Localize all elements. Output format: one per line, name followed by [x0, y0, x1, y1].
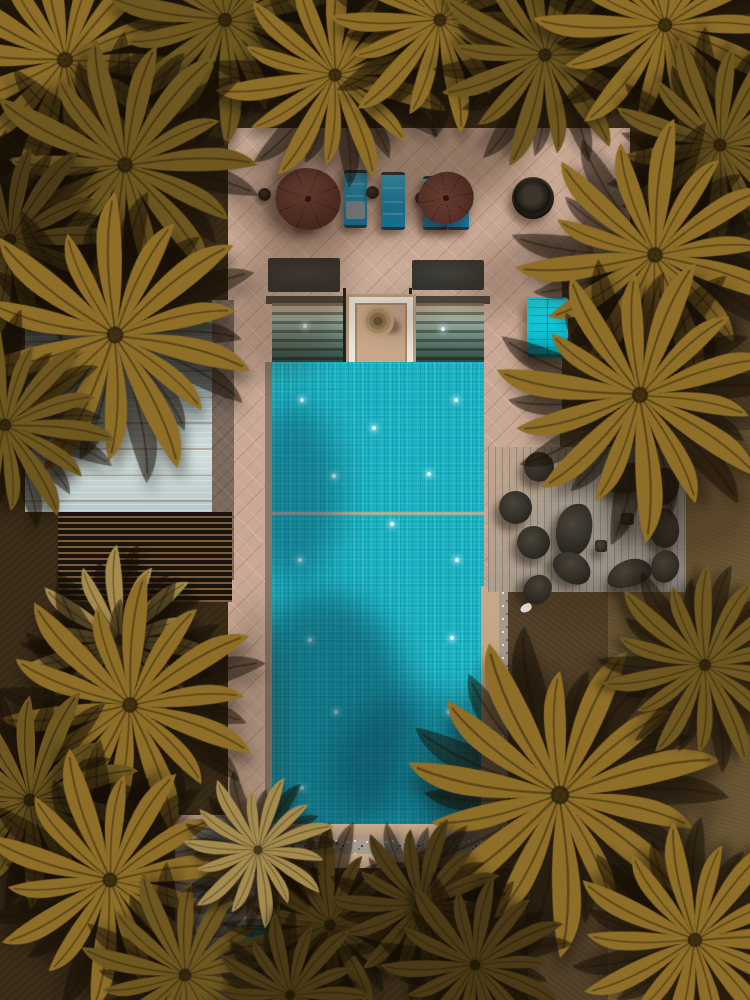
aerial-pool-photo	[0, 0, 750, 1000]
palm-canopy-layer	[0, 0, 750, 1000]
